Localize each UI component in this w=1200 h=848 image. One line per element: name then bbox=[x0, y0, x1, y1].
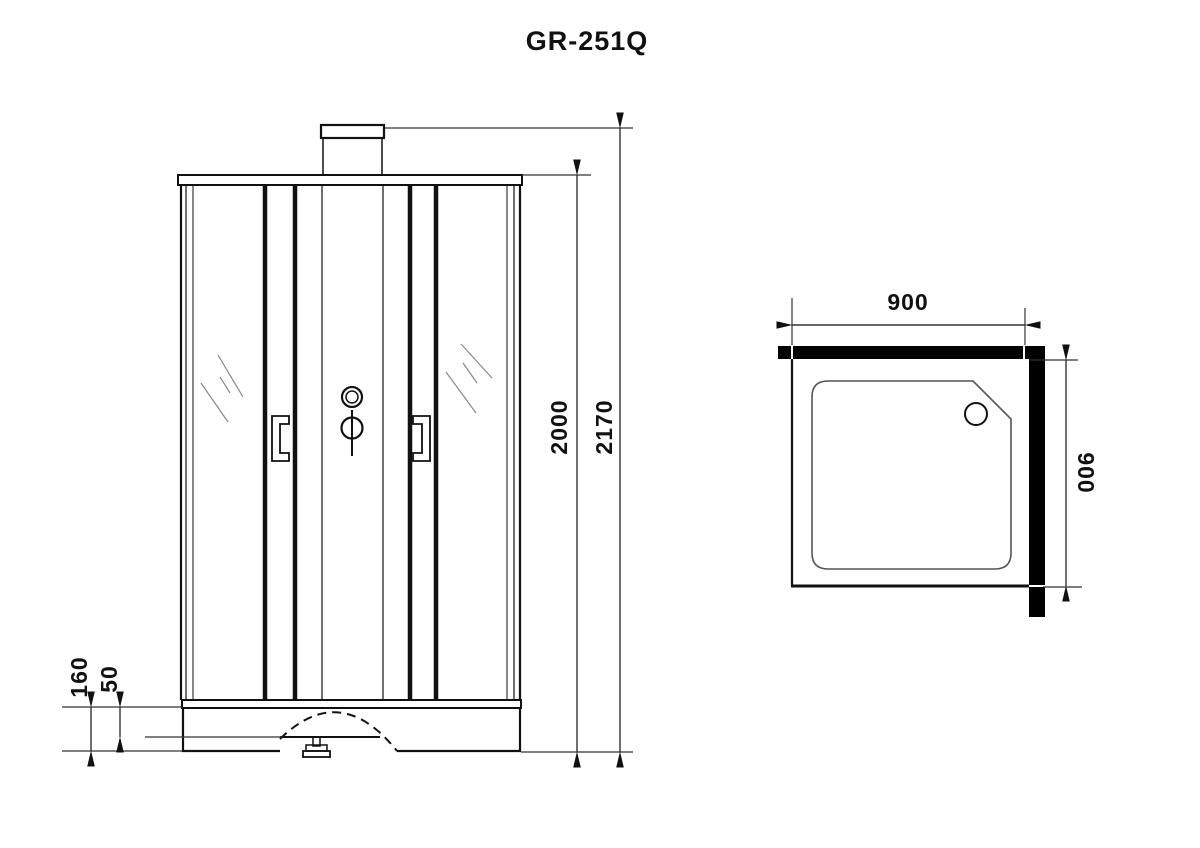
technical-drawing-page: GR-251Q bbox=[0, 0, 1200, 848]
plan-back-wall bbox=[778, 346, 1045, 359]
sliding-doors bbox=[265, 185, 436, 700]
front-view-dimensions: 2000 2170 160 50 bbox=[62, 128, 633, 752]
glass-hatch-right bbox=[446, 344, 492, 413]
cabin-frame bbox=[181, 185, 520, 700]
tray-height-label: 160 bbox=[66, 656, 92, 697]
tray-step-label: 50 bbox=[96, 665, 122, 693]
model-title: GR-251Q bbox=[526, 26, 649, 56]
door-handle-left-icon bbox=[272, 416, 289, 461]
glass-hatch-left bbox=[201, 355, 243, 422]
plan-depth-label: 900 bbox=[1073, 452, 1099, 493]
drain-icon bbox=[965, 403, 987, 425]
plan-tray-outline bbox=[812, 381, 1011, 569]
roof-bar bbox=[178, 175, 522, 185]
drawing-canvas: GR-251Q bbox=[0, 0, 1200, 848]
tray-hidden-contour bbox=[280, 712, 397, 751]
upper-knob-outer-ring bbox=[342, 387, 362, 407]
shower-mixer-icon bbox=[342, 387, 363, 456]
plan-view-dimensions: 900 900 bbox=[792, 289, 1099, 587]
front-view bbox=[178, 125, 522, 757]
cabin-height-label: 2000 bbox=[546, 399, 572, 454]
roof-cap bbox=[321, 125, 384, 138]
plan-width-label: 900 bbox=[887, 289, 928, 315]
plan-view bbox=[778, 345, 1046, 617]
overall-height-label: 2170 bbox=[591, 399, 617, 454]
shower-tray bbox=[182, 700, 521, 757]
adjustable-foot-icon bbox=[303, 737, 330, 757]
door-handle-right-icon bbox=[413, 416, 430, 461]
upper-knob-inner-ring bbox=[346, 391, 358, 403]
plan-side-wall bbox=[1029, 346, 1045, 617]
tray-top-band bbox=[182, 700, 521, 708]
